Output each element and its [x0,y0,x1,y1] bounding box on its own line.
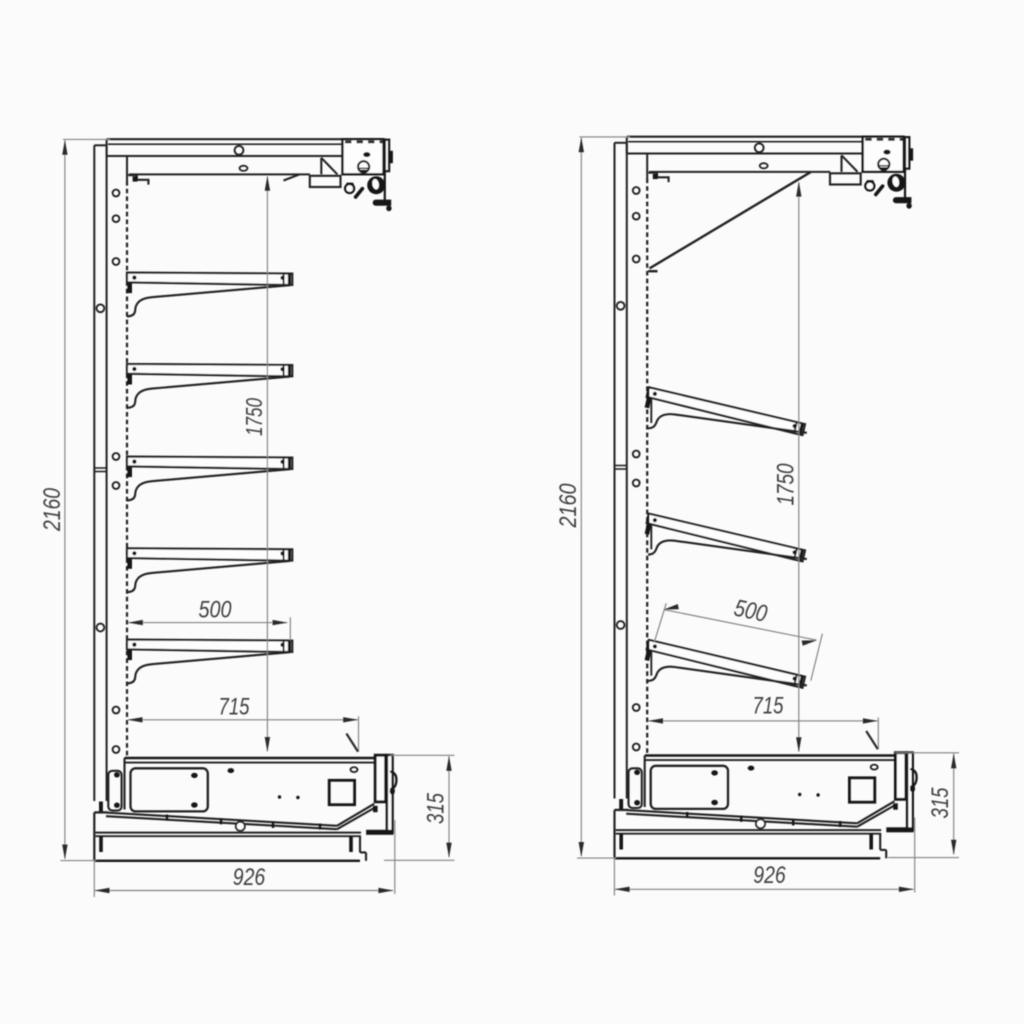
svg-text:715: 715 [219,693,251,720]
svg-text:926: 926 [753,862,786,889]
svg-text:715: 715 [753,692,785,719]
svg-text:315: 315 [423,792,450,824]
svg-text:500: 500 [199,596,233,623]
svg-text:1750: 1750 [241,398,267,436]
svg-text:315: 315 [927,787,954,819]
svg-text:2160: 2160 [39,487,66,531]
svg-text:2160: 2160 [555,483,582,528]
svg-text:926: 926 [233,864,266,891]
svg-text:1750: 1750 [773,463,800,506]
